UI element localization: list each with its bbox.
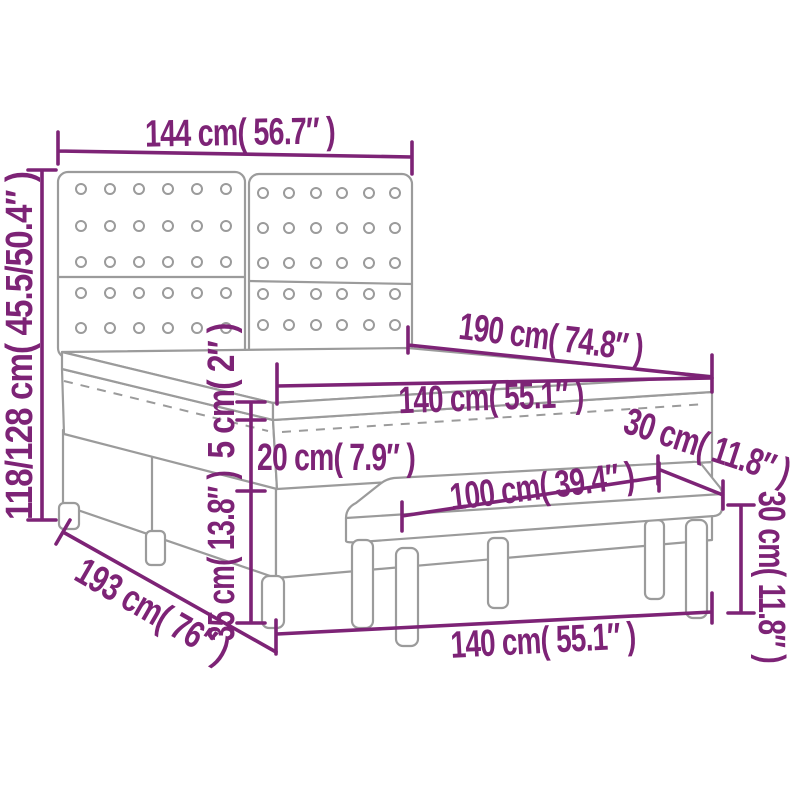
dim-base-width-label: 140 cm( 55.1″ ) <box>450 615 637 667</box>
headboard-button-icon <box>311 258 321 268</box>
headboard-button-icon <box>192 288 202 298</box>
headboard-button-icon <box>192 184 202 194</box>
dim-headboard-width-label: 144 cm( 56.7″ ) <box>145 110 336 155</box>
headboard-button-icon <box>337 188 347 198</box>
headboard-button-icon <box>76 257 86 267</box>
headboard-button-icon <box>163 184 173 194</box>
headboard-button-icon <box>134 184 144 194</box>
headboard-button-icon <box>364 289 374 299</box>
headboard-button-icon <box>105 323 115 333</box>
dim-topper-thickness-label: 5 cm( 2″ ) <box>201 324 243 459</box>
dim-bench-height: 30 cm( 11.8″ ) <box>728 491 792 663</box>
headboard-button-icon <box>76 288 86 298</box>
headboard-button-icon <box>284 320 294 330</box>
headboard-button-icon <box>311 223 321 233</box>
headboard-button-icon <box>284 188 294 198</box>
headboard-button-icon <box>192 221 202 231</box>
headboard-button-icon <box>390 188 400 198</box>
bench-leg-back-middle <box>488 538 508 608</box>
bench-leg-front-mid <box>396 548 418 646</box>
headboard-button-icon <box>105 221 115 231</box>
headboard-button-icon <box>134 323 144 333</box>
headboard-button-icon <box>221 257 231 267</box>
headboard-button-icon <box>337 320 347 330</box>
headboard-button-icon <box>364 223 374 233</box>
headboard-button-icon <box>390 320 400 330</box>
headboard-button-icon <box>258 223 268 233</box>
bed-leg-front-corner <box>262 576 284 628</box>
headboard-button-icon <box>337 223 347 233</box>
headboard-button-icon <box>258 289 268 299</box>
headboard-button-icon <box>258 258 268 268</box>
headboard-button-icon <box>76 221 86 231</box>
headboard-button-icon <box>364 320 374 330</box>
headboard-button-icon <box>163 323 173 333</box>
headboard-button-icon <box>163 288 173 298</box>
headboard-button-icon <box>134 288 144 298</box>
headboard-button-icon <box>390 223 400 233</box>
headboard-button-icon <box>364 188 374 198</box>
headboard-button-icon <box>163 257 173 267</box>
headboard-button-icon <box>284 223 294 233</box>
headboard-button-icon <box>221 288 231 298</box>
headboard-button-icon <box>76 323 86 333</box>
headboard-button-icon <box>258 188 268 198</box>
headboard-button-icon <box>337 289 347 299</box>
headboard-button-icon <box>76 184 86 194</box>
headboard-button-icon <box>163 221 173 231</box>
dim-bed-height: 118/128 cm( 45.5/50.4″ ) <box>0 170 56 520</box>
bed-drawing <box>58 172 712 628</box>
headboard-button-icon <box>390 289 400 299</box>
dimension-diagram: 144 cm( 56.7″ ) 118/128 cm( 45.5/50.4″ )… <box>0 0 800 800</box>
bench-leg-front-left <box>352 540 373 628</box>
headboard-button-icon <box>192 257 202 267</box>
diagram-canvas: 144 cm( 56.7″ ) 118/128 cm( 45.5/50.4″ )… <box>0 0 800 800</box>
dim-base-height-label: 35 cm( 13.8″ ) <box>201 471 243 641</box>
bed-leg-mid-left <box>146 531 165 565</box>
headboard-button-icon <box>221 221 231 231</box>
bench-leg-back-right <box>645 520 664 599</box>
headboard-button-icon <box>284 289 294 299</box>
headboard-button-icon <box>105 184 115 194</box>
headboard-button-icon <box>221 184 231 194</box>
dim-headboard-width: 144 cm( 56.7″ ) <box>58 110 412 174</box>
headboard-button-icon <box>390 258 400 268</box>
headboard-button-icon <box>364 258 374 268</box>
bench-leg-front-right <box>686 520 707 618</box>
headboard-button-icon <box>134 257 144 267</box>
headboard-button-icon <box>311 320 321 330</box>
dim-bed-height-label: 118/128 cm( 45.5/50.4″ ) <box>0 172 41 520</box>
dim-mattress-thickness-label: 20 cm( 7.9″ ) <box>257 437 415 479</box>
headboard-button-icon <box>105 257 115 267</box>
headboard-button-icon <box>258 320 268 330</box>
headboard-button-icon <box>105 288 115 298</box>
dim-mattress-width-label: 140 cm( 55.1″ ) <box>398 374 584 422</box>
headboard-button-icon <box>284 258 294 268</box>
dim-bench-height-label: 30 cm( 11.8″ ) <box>750 491 792 663</box>
headboard-button-icon <box>311 188 321 198</box>
headboard-button-icon <box>337 258 347 268</box>
headboard-button-icon <box>311 289 321 299</box>
headboard-button-icon <box>134 221 144 231</box>
